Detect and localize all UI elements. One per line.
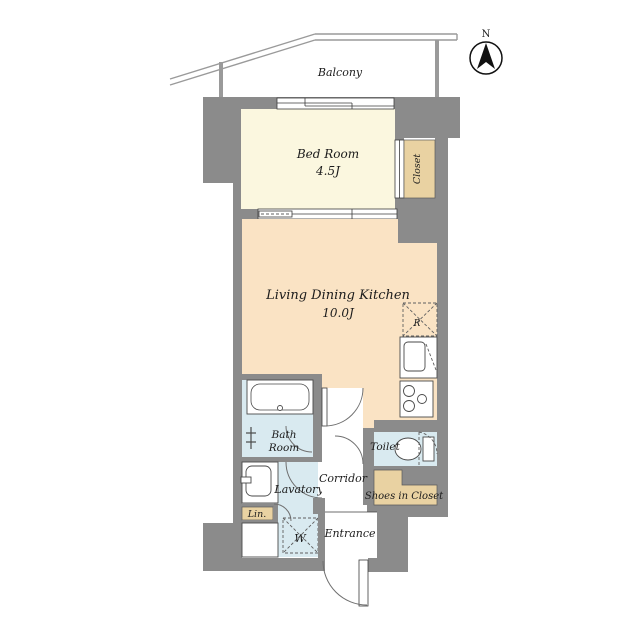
stove-burner-icon: [404, 386, 415, 397]
wall-segment: [437, 243, 448, 517]
shoes-closet-label: Shoes in Closet: [365, 491, 444, 502]
north-label: N: [482, 29, 491, 40]
kitchen-stove: [400, 381, 433, 417]
bath-label-line2: Room: [268, 442, 300, 454]
balcony-window: [277, 98, 394, 109]
wall-segment: [242, 374, 322, 380]
floor-plan-drawing: Balcony N Bed Room 4.5J: [0, 0, 640, 640]
floor-plan-page: Balcony N Bed Room 4.5J: [0, 0, 640, 640]
balcony-post: [435, 40, 439, 98]
stove-burner-icon: [418, 395, 427, 404]
stove-burner-icon: [404, 401, 415, 412]
balcony: Balcony: [170, 34, 457, 98]
wall-segment: [368, 558, 408, 572]
toilet-label: Toilet: [370, 441, 400, 453]
wall-segment: [398, 200, 448, 243]
linen-label: Lin.: [247, 509, 267, 520]
washer-label: W: [294, 532, 307, 545]
wall-segment: [402, 466, 437, 485]
wall-segment: [374, 466, 402, 470]
corridor-floor: [322, 388, 363, 512]
wall-segment: [242, 457, 322, 462]
storage-box: [242, 523, 278, 557]
wall-segment: [435, 138, 448, 200]
wall-segment: [233, 183, 242, 558]
bedroom-ldk-partition: [258, 209, 397, 219]
bath-room: Bath Room: [242, 374, 322, 462]
compass: N: [470, 29, 502, 74]
wall-segment: [242, 520, 278, 523]
balcony-post: [219, 62, 223, 98]
wall-segment: [374, 420, 448, 432]
closet: Closet: [395, 140, 435, 198]
window-frame: [277, 98, 394, 109]
bedroom-label: Bed Room: [296, 147, 359, 161]
ldk-size-label: 10.0J: [322, 306, 355, 320]
entrance-door-leaf: [359, 560, 368, 606]
ldk-door-leaf: [322, 388, 327, 426]
wall-segment: [404, 110, 460, 138]
lavatory-label: Lavatory: [273, 483, 324, 496]
lavatory-area: Lavatory Lin. W: [241, 462, 324, 557]
tub-drain-icon: [278, 406, 283, 411]
wall-segment: [313, 498, 325, 514]
wall-segment: [313, 374, 322, 462]
bedroom-room: Bed Room 4.5J: [241, 109, 395, 209]
faucet-icon: [241, 477, 251, 483]
wall-segment: [377, 508, 408, 558]
corridor-label: Corridor: [319, 472, 368, 485]
kitchen-sink: [404, 342, 425, 371]
entrance-label: Entrance: [323, 527, 376, 540]
wall-segment: [203, 97, 241, 183]
balcony-railing-line: [170, 34, 315, 79]
fridge-label: R: [413, 319, 421, 329]
bath-label-line1: Bath: [271, 429, 297, 441]
balcony-label: Balcony: [317, 66, 363, 79]
ldk-label: Living Dining Kitchen: [265, 288, 410, 303]
bedroom-size-label: 4.5J: [315, 164, 341, 178]
closet-label: Closet: [412, 154, 423, 185]
balcony-railing-line: [170, 40, 315, 85]
wall-segment: [242, 503, 278, 507]
